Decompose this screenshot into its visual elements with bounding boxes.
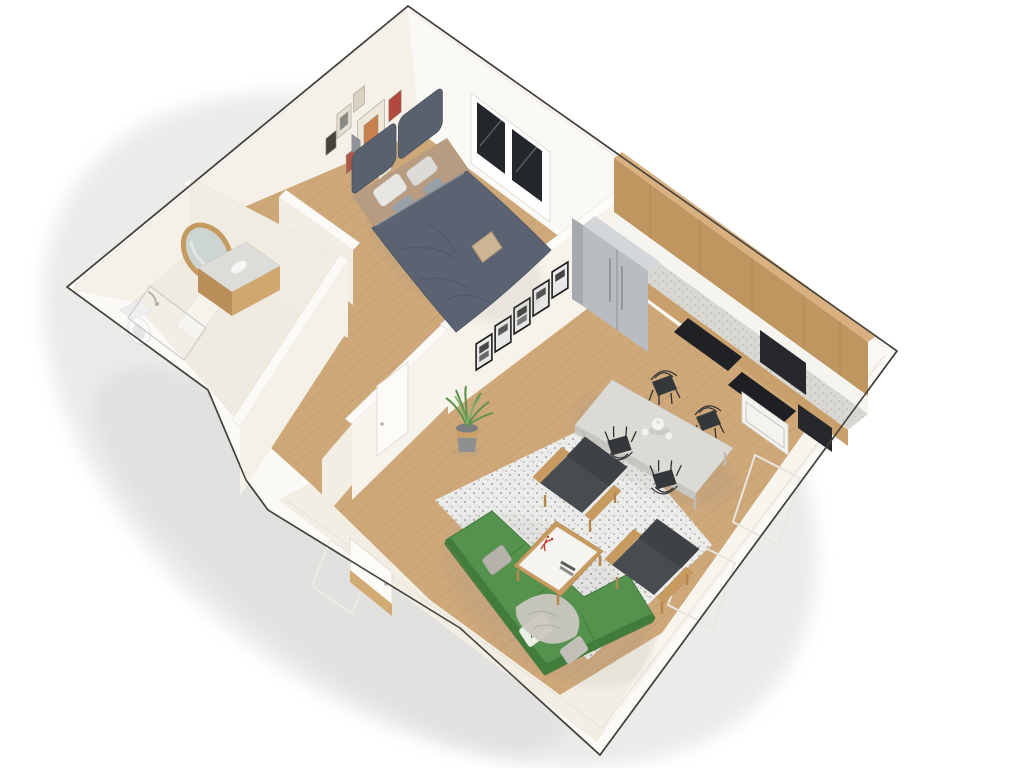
- floor-plan-render: [0, 0, 1024, 768]
- floor-plan-canvas: [0, 0, 1024, 768]
